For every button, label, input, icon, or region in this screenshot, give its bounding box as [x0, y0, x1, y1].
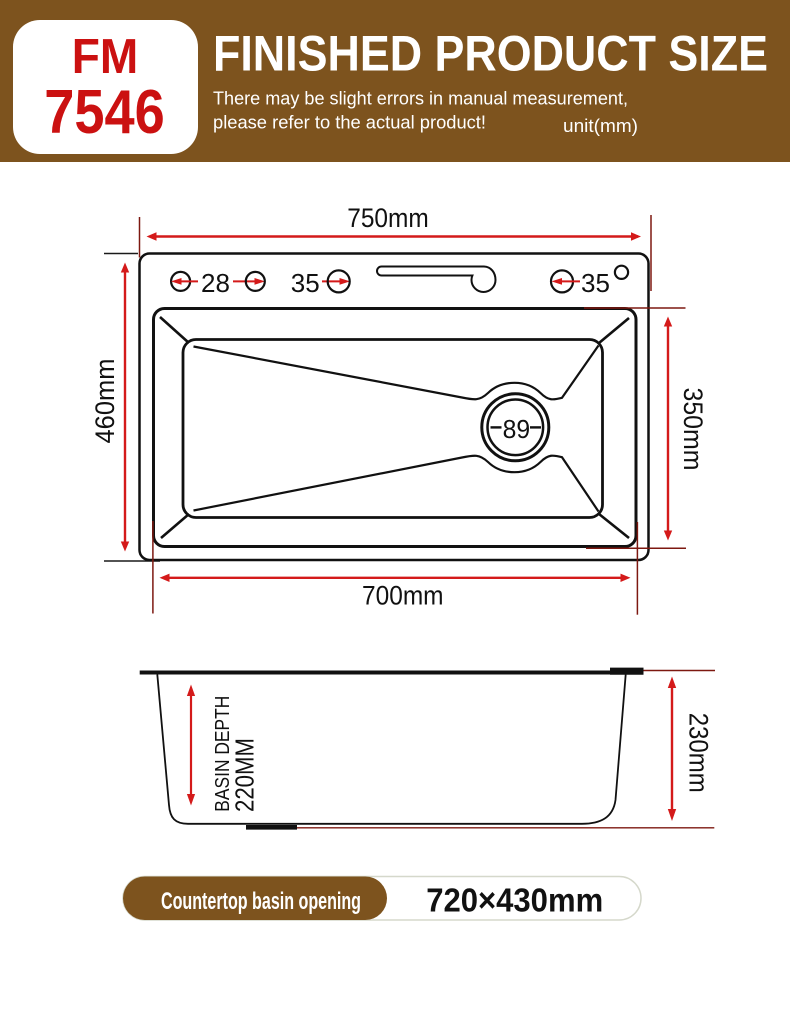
svg-text:230mm: 230mm — [684, 713, 714, 793]
svg-text:700mm: 700mm — [362, 581, 444, 611]
svg-text:35: 35 — [291, 268, 320, 298]
svg-text:please refer to the actual pro: please refer to the actual product! — [213, 113, 486, 133]
svg-text:35: 35 — [581, 268, 610, 298]
svg-text:FM: FM — [72, 30, 139, 84]
svg-text:28: 28 — [201, 268, 230, 298]
svg-text:460mm: 460mm — [90, 359, 120, 444]
svg-text:7546: 7546 — [44, 78, 165, 147]
svg-text:Countertop basin opening: Countertop basin opening — [161, 888, 361, 915]
svg-text:720×430mm: 720×430mm — [426, 881, 603, 918]
svg-text:220MM: 220MM — [230, 738, 260, 812]
svg-text:89: 89 — [503, 416, 531, 444]
svg-text:350mm: 350mm — [678, 388, 708, 471]
svg-text:There may be slight errors in: There may be slight errors in manual mea… — [213, 89, 628, 109]
svg-text:unit(mm): unit(mm) — [563, 116, 638, 136]
svg-text:FINISHED PRODUCT SIZE: FINISHED PRODUCT SIZE — [213, 26, 768, 82]
svg-text:750mm: 750mm — [347, 203, 429, 233]
